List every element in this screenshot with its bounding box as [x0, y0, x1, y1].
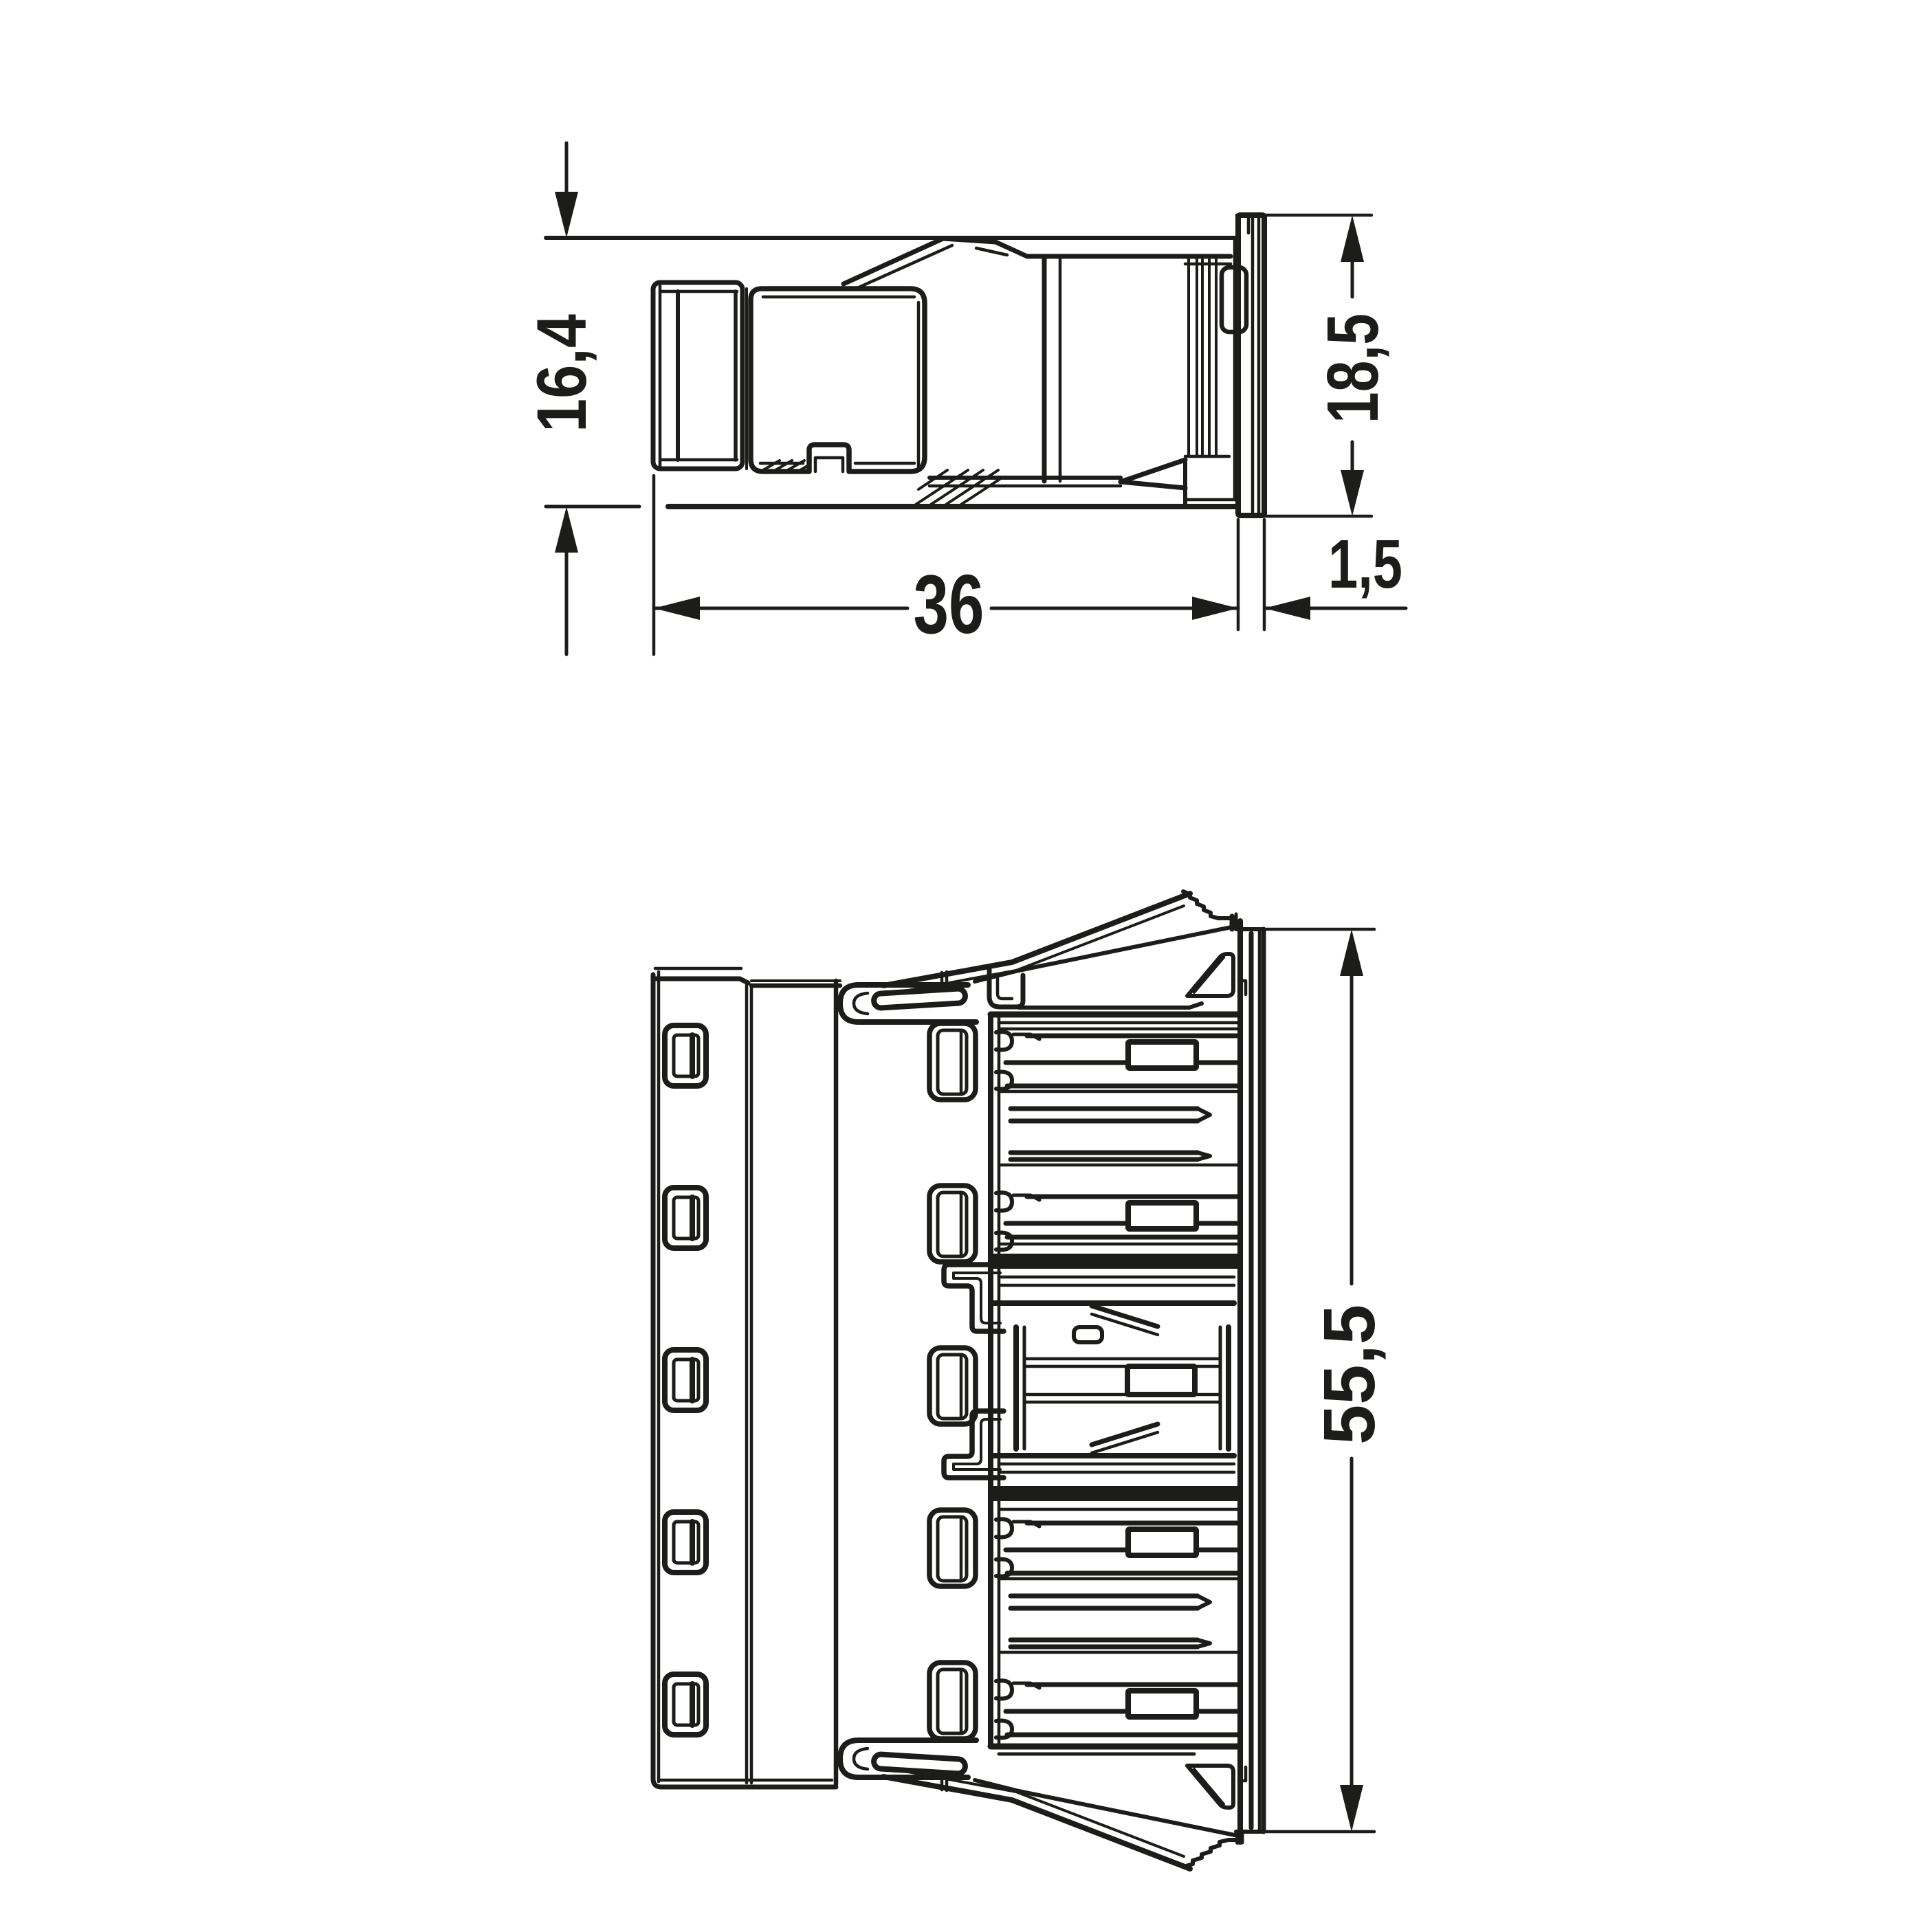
svg-text:16,4: 16,4 [522, 314, 601, 432]
svg-text:1,5: 1,5 [1328, 526, 1402, 603]
svg-text:18,5: 18,5 [1312, 313, 1394, 423]
svg-text:55,5: 55,5 [1309, 1304, 1390, 1445]
svg-text:36: 36 [914, 557, 984, 651]
